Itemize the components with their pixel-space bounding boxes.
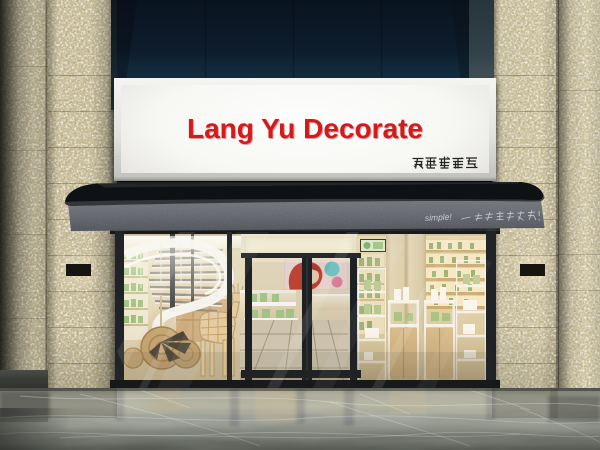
svg-text:simple!: simple! <box>425 212 453 223</box>
